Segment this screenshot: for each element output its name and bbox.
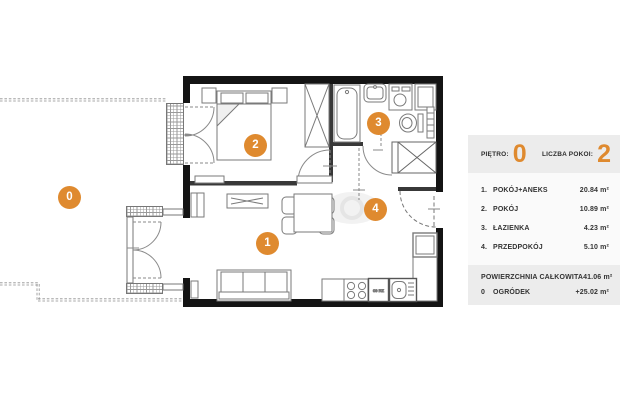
rooms-count-stat: LICZBA POKOI: 2 bbox=[542, 142, 610, 167]
room-marker-living: 1 bbox=[256, 232, 279, 255]
kitchen-sink bbox=[390, 279, 417, 302]
low-cabinet-left bbox=[195, 176, 224, 183]
garden-label: OGRÓDEK bbox=[493, 286, 576, 301]
room-row-area: 20.84 m² bbox=[580, 181, 609, 200]
dishwasher: 09 RZ bbox=[369, 279, 389, 302]
living-garden-window-top bbox=[126, 206, 163, 217]
rooms-count-value: 2 bbox=[597, 142, 610, 167]
radiator-living-top bbox=[191, 193, 204, 217]
total-area-label: POWIERZCHNIA CAŁKOWITA bbox=[481, 271, 583, 286]
fridge bbox=[413, 233, 437, 257]
toilet bbox=[400, 114, 424, 132]
room-row-label: POKÓJ+ANEKS bbox=[493, 181, 580, 200]
garden-area-value: +25.02 m² bbox=[576, 286, 609, 301]
room-marker-bedroom: 2 bbox=[244, 134, 267, 157]
low-cabinet-right bbox=[297, 176, 332, 183]
room-row-4: 4. PRZEDPOKÓJ 5.10 m² bbox=[481, 238, 609, 257]
dining-table bbox=[282, 194, 334, 234]
floor-label: PIĘTRO: bbox=[481, 151, 509, 158]
bathroom-fixtures bbox=[334, 84, 436, 142]
room-row-num: 2. bbox=[481, 200, 493, 219]
stove bbox=[344, 279, 368, 301]
room-row-num: 1. bbox=[481, 181, 493, 200]
radiator-living-bottom bbox=[191, 281, 198, 298]
sink bbox=[364, 84, 386, 102]
garden-boundary bbox=[0, 99, 183, 301]
hall-closet bbox=[392, 142, 436, 173]
radiator-bathroom bbox=[427, 107, 434, 138]
bedroom-balcony-window bbox=[166, 103, 184, 165]
total-area-value: 41.06 m² bbox=[583, 271, 612, 286]
info-panel: PIĘTRO: 0 LICZBA POKOI: 2 1. POKÓJ+ANEKS… bbox=[468, 135, 620, 305]
floor-stat: PIĘTRO: 0 bbox=[481, 142, 526, 167]
wardrobe bbox=[305, 84, 329, 147]
panel-header: PIĘTRO: 0 LICZBA POKOI: 2 bbox=[468, 135, 620, 173]
panel-summary: POWIERZCHNIA CAŁKOWITA 41.06 m² 0 OGRÓDE… bbox=[468, 265, 620, 305]
washing-machine bbox=[389, 84, 412, 110]
room-row-num: 3. bbox=[481, 219, 493, 238]
room-row-3: 3. ŁAZIENKA 4.23 m² bbox=[481, 219, 609, 238]
room-row-2: 2. POKÓJ 10.89 m² bbox=[481, 200, 609, 219]
sofa bbox=[217, 270, 291, 301]
room-row-label: POKÓJ bbox=[493, 200, 580, 219]
dishwasher-label: 09 RZ bbox=[373, 288, 384, 293]
nightstand-right bbox=[272, 88, 287, 103]
shower-cabinet bbox=[415, 84, 436, 110]
room-row-label: PRZEDPOKÓJ bbox=[493, 238, 584, 257]
living-garden-window-bottom bbox=[126, 283, 163, 294]
rooms-count-label: LICZBA POKOI: bbox=[542, 151, 593, 158]
room-row-area: 5.10 m² bbox=[584, 238, 609, 257]
room-row-label: ŁAZIENKA bbox=[493, 219, 584, 238]
garden-num: 0 bbox=[481, 286, 493, 301]
room-marker-hall: 4 bbox=[364, 198, 387, 221]
floorplan-page: 09 RZ 0 1 2 3 4 PIĘTRO: 0 LICZBA POKOI: … bbox=[0, 0, 620, 400]
room-row-1: 1. POKÓJ+ANEKS 20.84 m² bbox=[481, 181, 609, 200]
floor-value: 0 bbox=[513, 142, 526, 167]
bathtub bbox=[334, 85, 360, 142]
nightstand-left bbox=[202, 88, 216, 103]
room-row-area: 10.89 m² bbox=[580, 200, 609, 219]
garden-row: 0 OGRÓDEK +25.02 m² bbox=[481, 286, 609, 301]
room-row-num: 4. bbox=[481, 238, 493, 257]
room-row-area: 4.23 m² bbox=[584, 219, 609, 238]
total-area-row: POWIERZCHNIA CAŁKOWITA 41.06 m² bbox=[481, 271, 609, 286]
room-list: 1. POKÓJ+ANEKS 20.84 m² 2. POKÓJ 10.89 m… bbox=[468, 173, 620, 265]
tv-stand bbox=[227, 194, 268, 208]
kitchen: 09 RZ bbox=[322, 233, 437, 302]
room-marker-garden: 0 bbox=[58, 186, 81, 209]
room-marker-bathroom: 3 bbox=[367, 112, 390, 135]
